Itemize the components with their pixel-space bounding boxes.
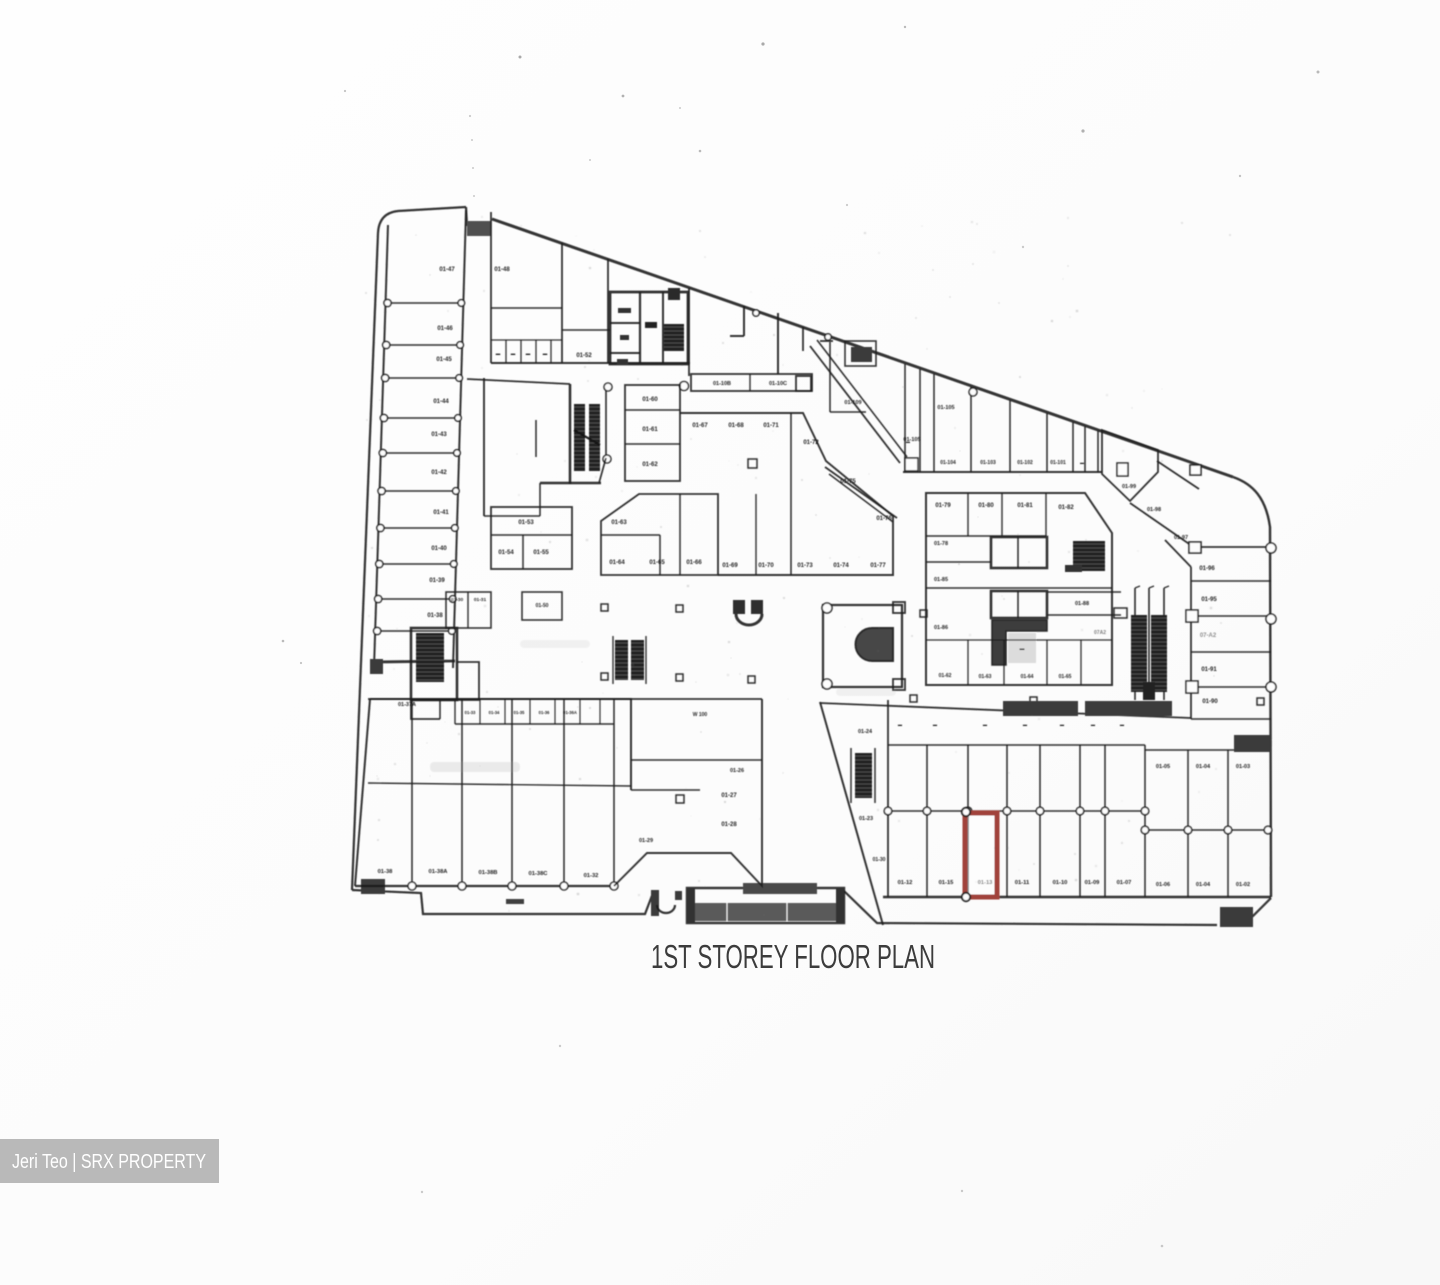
svg-text:▬: ▬ (526, 351, 531, 356)
svg-text:01-63: 01-63 (611, 520, 627, 526)
svg-text:01-85: 01-85 (934, 577, 948, 583)
svg-text:01-26: 01-26 (730, 768, 744, 774)
svg-text:01-62: 01-62 (642, 462, 658, 468)
svg-text:01-09: 01-09 (1085, 880, 1101, 886)
svg-text:01-38A: 01-38A (428, 869, 448, 875)
svg-text:01-05: 01-05 (1156, 764, 1170, 770)
svg-text:01-45: 01-45 (436, 357, 452, 363)
svg-text:01-105: 01-105 (937, 405, 954, 411)
svg-text:01-30: 01-30 (451, 597, 464, 603)
svg-text:01-03: 01-03 (1236, 764, 1250, 770)
svg-text:01-30: 01-30 (873, 857, 886, 863)
svg-text:01-31: 01-31 (474, 597, 487, 603)
svg-text:W 100: W 100 (693, 712, 708, 718)
svg-text:01-42: 01-42 (431, 470, 447, 476)
svg-text:01-35: 01-35 (514, 710, 525, 715)
svg-text:01-69: 01-69 (722, 563, 738, 569)
svg-text:01-43: 01-43 (431, 432, 447, 438)
svg-text:01-81: 01-81 (1017, 503, 1033, 509)
svg-text:01-38: 01-38 (378, 869, 394, 875)
svg-text:01-64: 01-64 (1021, 674, 1034, 680)
svg-text:▬: ▬ (543, 351, 548, 356)
svg-text:01-50: 01-50 (536, 603, 549, 609)
svg-text:01-78: 01-78 (934, 541, 948, 547)
svg-text:01-53: 01-53 (518, 520, 534, 526)
svg-text:01-47: 01-47 (439, 267, 455, 273)
svg-text:01-79: 01-79 (935, 503, 951, 509)
svg-text:01-46: 01-46 (437, 326, 453, 332)
svg-text:01-40: 01-40 (431, 546, 447, 552)
svg-text:01-67: 01-67 (692, 423, 708, 429)
svg-text:01-38: 01-38 (427, 613, 443, 619)
svg-text:01-105: 01-105 (903, 437, 920, 443)
svg-text:01-24: 01-24 (858, 729, 873, 735)
svg-text:01-54: 01-54 (498, 550, 514, 556)
svg-text:01-88: 01-88 (1075, 601, 1089, 607)
svg-text:01-63: 01-63 (979, 674, 992, 680)
svg-text:01-91: 01-91 (1201, 667, 1217, 673)
svg-text:▬: ▬ (1020, 646, 1025, 652)
svg-text:01-74: 01-74 (833, 563, 849, 569)
svg-text:01-65: 01-65 (1059, 674, 1072, 680)
svg-text:01-61: 01-61 (642, 427, 658, 433)
svg-text:01-98: 01-98 (1147, 507, 1161, 513)
svg-text:01-95: 01-95 (1201, 597, 1217, 603)
svg-text:01-66: 01-66 (686, 560, 702, 566)
svg-text:01-34: 01-34 (489, 710, 500, 715)
svg-text:01-28: 01-28 (721, 822, 737, 828)
svg-text:01-07: 01-07 (1117, 880, 1132, 886)
svg-text:01-72: 01-72 (803, 440, 819, 446)
svg-text:01-77: 01-77 (870, 563, 886, 569)
svg-text:▬: ▬ (496, 351, 501, 356)
svg-text:01-55: 01-55 (533, 550, 549, 556)
svg-text:01-29: 01-29 (639, 838, 653, 844)
svg-text:01-06: 01-06 (1156, 882, 1170, 888)
svg-text:01-97: 01-97 (1174, 535, 1188, 541)
svg-text:01-27: 01-27 (721, 793, 737, 799)
svg-text:01-86: 01-86 (934, 625, 948, 631)
svg-text:01-04: 01-04 (1196, 882, 1211, 888)
svg-text:▬: ▬ (511, 351, 516, 356)
svg-text:01-15: 01-15 (939, 880, 955, 886)
svg-text:01-99: 01-99 (1122, 484, 1136, 490)
svg-text:01-10C: 01-10C (769, 381, 787, 387)
svg-text:01-82: 01-82 (1058, 505, 1074, 511)
svg-text:01-64: 01-64 (609, 560, 625, 566)
svg-text:01-68: 01-68 (728, 423, 744, 429)
svg-text:01-12: 01-12 (898, 880, 913, 886)
svg-text:01-52: 01-52 (576, 353, 592, 359)
svg-text:01-103: 01-103 (980, 460, 996, 466)
svg-text:01-101: 01-101 (1050, 460, 1066, 466)
svg-text:01-65: 01-65 (649, 560, 665, 566)
svg-text:01-60: 01-60 (642, 397, 658, 403)
svg-text:01-71: 01-71 (763, 423, 779, 429)
svg-text:01-38C: 01-38C (528, 871, 548, 877)
svg-text:07-A2: 07-A2 (1200, 633, 1217, 639)
svg-text:01-37A: 01-37A (398, 702, 416, 708)
svg-text:01-23: 01-23 (859, 816, 873, 822)
svg-text:01-04: 01-04 (1196, 764, 1211, 770)
svg-text:01-10: 01-10 (1053, 880, 1068, 886)
svg-text:Jeri Teo | SRX PROPERTY: Jeri Teo | SRX PROPERTY (12, 1150, 206, 1173)
svg-text:01-102: 01-102 (1017, 460, 1033, 466)
svg-text:01-41: 01-41 (433, 510, 449, 516)
svg-text:01-90: 01-90 (1202, 699, 1218, 705)
svg-text:01-104: 01-104 (940, 460, 956, 466)
svg-text:01-80: 01-80 (978, 503, 994, 509)
svg-text:1ST STOREY FLOOR PLAN: 1ST STOREY FLOOR PLAN (651, 938, 935, 975)
svg-text:01-11: 01-11 (1015, 880, 1030, 886)
svg-text:01-44: 01-44 (433, 399, 449, 405)
svg-text:01-10B: 01-10B (713, 381, 731, 387)
svg-text:▬: ▬ (1080, 460, 1084, 465)
svg-text:01-70: 01-70 (758, 563, 774, 569)
svg-text:07A2: 07A2 (1094, 630, 1106, 636)
svg-text:01-96: 01-96 (1199, 566, 1215, 572)
svg-text:01-48: 01-48 (494, 267, 510, 273)
svg-text:01-02: 01-02 (1236, 882, 1250, 888)
svg-text:01-109: 01-109 (844, 400, 861, 406)
svg-text:01-38B: 01-38B (478, 870, 497, 876)
svg-text:01-39: 01-39 (429, 578, 445, 584)
svg-text:01-36A: 01-36A (563, 710, 577, 715)
svg-text:01-33: 01-33 (465, 710, 476, 715)
svg-text:01-62: 01-62 (939, 673, 952, 679)
svg-text:01-73: 01-73 (797, 563, 813, 569)
svg-text:01-32: 01-32 (584, 873, 599, 879)
svg-text:01-36: 01-36 (539, 710, 550, 715)
